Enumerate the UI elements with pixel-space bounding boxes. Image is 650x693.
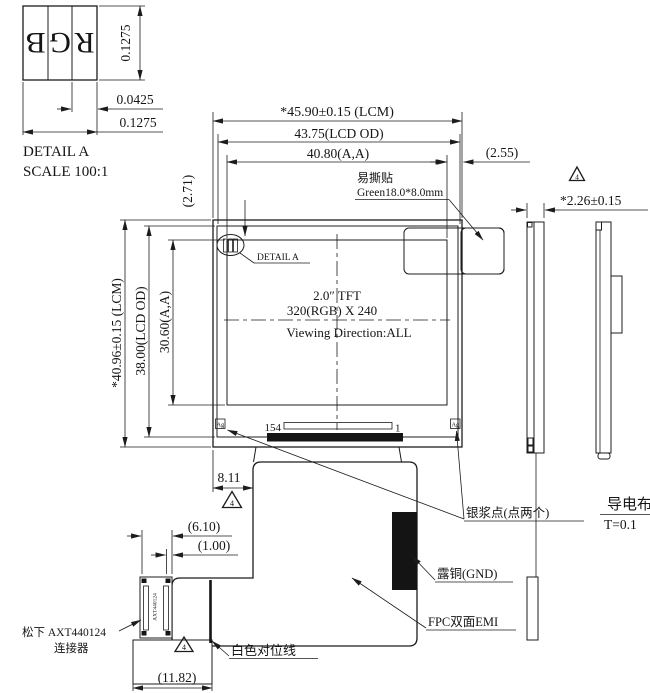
sticker-name-label: 易撕贴 [357,171,393,185]
annotations-layer: 易撕贴 Green18.0*8.0mm 银浆点(点两个) 露铜(GND) FPC… [22,171,650,659]
dim-width-aa: 40.80(A,A) [307,146,369,161]
fpc-body [172,462,417,646]
fpc-emi-label: FPC双面EMI [428,615,498,629]
dim-pixel: 0.1275 [119,115,156,130]
dim-height-lcd: 38.00(LCD OD) [133,286,148,375]
tear-sticker-outline [404,228,504,274]
panel-resolution-text: 320(RGB) X 240 [287,303,377,318]
svg-text:4: 4 [230,499,234,508]
profile-body [596,222,611,453]
side-view-profile [596,222,622,459]
connector-brand-label: 松下 AXT440124 [22,625,106,639]
sticker-spec-label: Green18.0*8.0mm [357,187,443,199]
subpixel-letter-r: R [74,26,94,59]
dim-connector-pitch: (1.00) [198,538,231,553]
dim-tail-width: (11.82) [158,670,197,685]
subpixel-letter-g: G [49,26,71,59]
lcm-engineering-drawing: B G R 0.1275 0.0425 0.1275 DETAIL A SCAL… [0,0,650,693]
side-view-section: *2.26±0.15 4 [511,167,648,640]
dim-height-aa: 30.60(A,A) [157,291,172,353]
svg-text:4: 4 [182,643,186,652]
subpixel-letter-b: B [25,26,45,59]
silver-dot-left-label: Ag [216,422,225,429]
dim-thickness: *2.26±0.15 [560,193,622,208]
left-dimensions: *40.96±0.15 (LCM) 38.00(LCD OD) 30.60(A,… [109,220,225,447]
exposed-copper-area [392,512,417,590]
pin-last-label: 1 [395,423,401,435]
profile-foot [598,453,610,459]
side-hatched-body [534,222,544,453]
detail-a-callout-label: DETAIL A [257,253,299,263]
conductive-thickness-label: T=0.1 [604,517,637,532]
pin-row [284,423,392,430]
silver-dot-right-label: Ag [451,422,460,429]
connector-word-label: 连接器 [54,641,89,655]
dim-width-lcd: 43.75(LCD OD) [294,126,383,141]
profile-protrusion [611,276,622,333]
rev-triangle-1: 4 [570,167,585,182]
silver-paste-label: 银浆点(点两个) [466,505,549,520]
dim-height-lcm: *40.96±0.15 (LCM) [109,278,124,388]
dim-connector-offset: (6.10) [188,519,221,534]
dim-fpc-offset: 8.11 [217,470,240,485]
detail-a-view: B G R 0.1275 0.0425 0.1275 DETAIL A SCAL… [23,6,163,180]
top-dimensions: *45.90±0.15 (LCM) 43.75(LCD OD) 40.80(A,… [180,105,530,238]
dim-subpixel: 0.0425 [116,92,153,107]
side-glass [527,222,534,453]
panel-size-text: 2.0″ TFT [313,288,361,303]
side-fpc-tail [527,577,538,640]
front-view: DETAIL A 2.0″ TFT 320(RGB) X 240 Viewing… [213,220,504,462]
rev-triangle-2: 4 [223,492,242,509]
svg-text:4: 4 [575,173,579,182]
white-align-label: 白色对位线 [231,643,296,658]
exposed-copper-label: 露铜(GND) [437,566,497,581]
tear-sticker-hatched [461,228,504,274]
connector: AXT440124 [140,577,172,638]
panel-viewing-text: Viewing Direction:ALL [286,325,411,340]
connector-part-text: AXT440124 [153,593,159,621]
dim-margin-right: (2.55) [486,145,519,160]
dim-margin-top: (2.71) [180,175,195,208]
drawing-canvas: B G R 0.1275 0.0425 0.1275 DETAIL A SCAL… [0,0,650,693]
conductive-cloth-label: 导电布 [607,496,650,513]
pin-first-label: 154 [265,422,282,434]
dim-cell-height: 0.1275 [118,24,133,61]
detail-a-label: DETAIL A [23,144,89,160]
bonding-bar [267,433,403,442]
dim-width-lcm: *45.90±0.15 (LCM) [280,105,394,120]
scale-label: SCALE 100:1 [23,164,108,180]
